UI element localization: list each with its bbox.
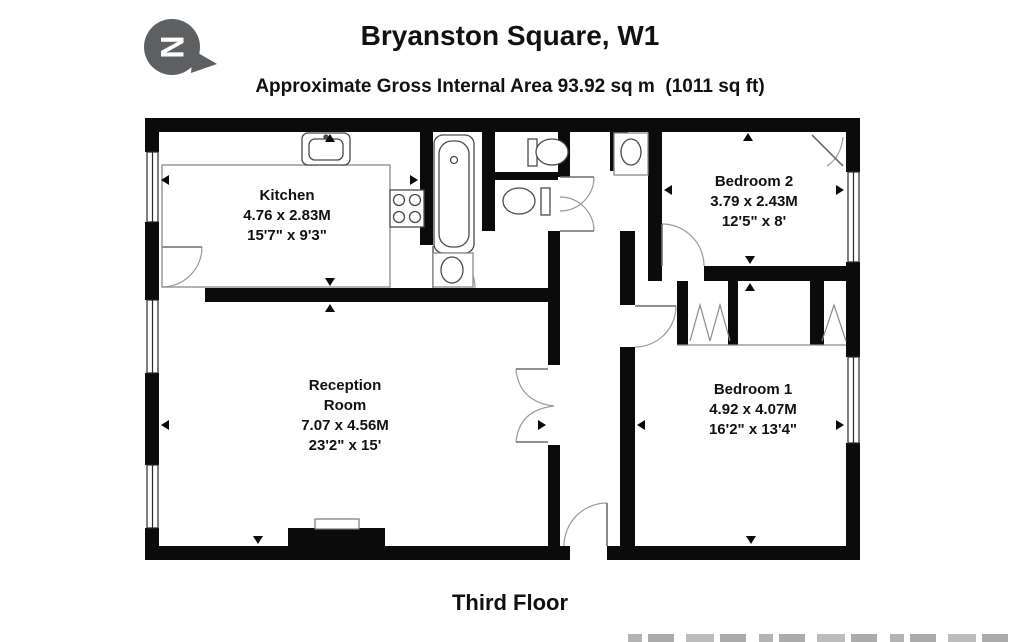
bathroom-fittings [433, 133, 648, 287]
wardrobe-door-icon [710, 305, 730, 341]
toilet-icon [503, 188, 550, 215]
room-name: Reception [225, 376, 465, 396]
window-left-2 [147, 300, 158, 373]
window-left-3 [147, 465, 158, 528]
cutoff-text-artifact [628, 634, 1020, 642]
kitchen-label: Kitchen 4.76 x 2.83M 15'7" x 9'3" [167, 186, 407, 246]
bedroom2-label: Bedroom 2 3.79 x 2.43M 12'5" x 8' [634, 172, 874, 232]
room-name: Room [225, 396, 465, 416]
room-name: Bedroom 2 [634, 172, 874, 192]
room-metric: 4.76 x 2.83M [167, 206, 407, 226]
kitchen-sink-icon [302, 133, 350, 165]
floorplan-page: N Bryanston Square, W1 Approximate Gross… [0, 0, 1020, 642]
room-imperial: 16'2" x 13'4" [633, 420, 873, 440]
basin-icon [614, 133, 648, 175]
room-metric: 4.92 x 4.07M [633, 400, 873, 420]
basin-icon [433, 253, 473, 287]
floor-label: Third Floor [0, 590, 1020, 616]
room-name: Kitchen [167, 186, 407, 206]
room-imperial: 15'7" x 9'3" [167, 226, 407, 246]
bathtub-icon [434, 135, 474, 253]
wardrobe-door-icon [690, 305, 710, 341]
room-metric: 3.79 x 2.43M [634, 192, 874, 212]
room-imperial: 12'5" x 8' [634, 212, 874, 232]
fireplace-chimney-breast [288, 528, 385, 546]
bedroom1-label: Bedroom 1 4.92 x 4.07M 16'2" x 13'4" [633, 380, 873, 440]
reception-label: Reception Room 7.07 x 4.56M 23'2" x 15' [225, 376, 465, 456]
floorplan-drawing [0, 0, 1020, 642]
hearth [315, 519, 359, 529]
room-imperial: 23'2" x 15' [225, 436, 465, 456]
window-left-1 [147, 152, 158, 222]
wardrobe-door-icon [822, 305, 846, 341]
room-metric: 7.07 x 4.56M [225, 416, 465, 436]
room-name: Bedroom 1 [633, 380, 873, 400]
toilet-icon [528, 139, 568, 166]
